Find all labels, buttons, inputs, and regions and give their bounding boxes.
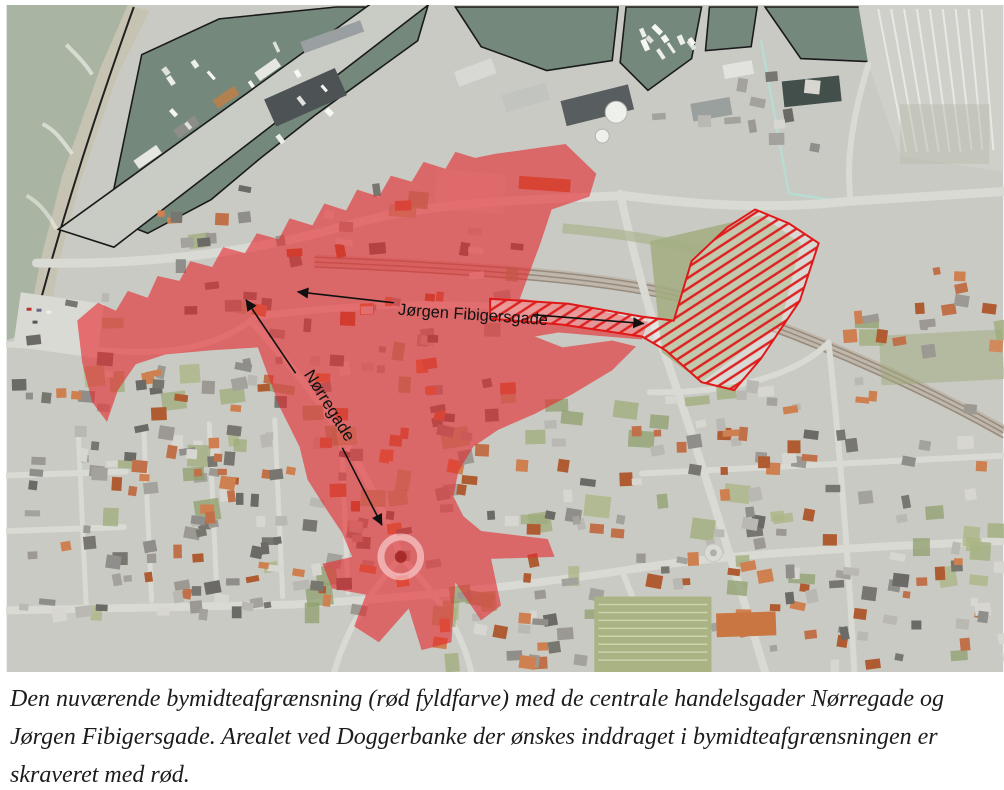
caption-line-3: skraveret med rød. xyxy=(10,756,990,790)
aerial-map-svg: Jørgen Fibigersgade Nørregade xyxy=(6,5,1004,672)
figure-caption: Den nuværende bymidteafgrænsning (rød fy… xyxy=(0,672,1004,790)
small-roundabout xyxy=(705,544,723,562)
map-figure: Jørgen Fibigersgade Nørregade xyxy=(6,5,1004,672)
document-page: Jørgen Fibigersgade Nørregade Den nuvære… xyxy=(0,0,1004,790)
caption-line-1: Den nuværende bymidteafgrænsning (rød fy… xyxy=(10,680,990,718)
caption-line-2: Jørgen Fibigersgade. Arealet ved Doggerb… xyxy=(10,718,990,756)
